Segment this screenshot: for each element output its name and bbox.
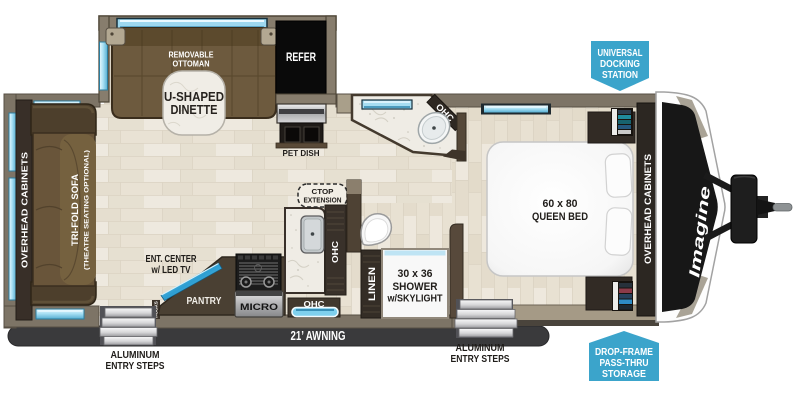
svg-text:21’ AWNING: 21’ AWNING [291,329,346,343]
svg-text:OTTOMAN: OTTOMAN [173,59,210,69]
svg-text:ENT. CENTER: ENT. CENTER [146,254,198,265]
svg-text:w/ LED TV: w/ LED TV [151,265,191,276]
svg-text:CTOP: CTOP [312,189,334,196]
svg-text:STATION: STATION [602,70,638,81]
svg-text:EXTENSION: EXTENSION [304,198,342,205]
svg-text:OHC: OHC [330,241,340,263]
svg-text:PASS-THRU: PASS-THRU [600,358,649,369]
svg-text:60 x 80: 60 x 80 [543,198,578,210]
svg-text:w/SKYLIGHT: w/SKYLIGHT [387,294,443,305]
svg-text:PANTRY: PANTRY [187,295,222,307]
svg-text:ALUMINUM: ALUMINUM [111,350,160,361]
svg-text:(THEATRE SEATING OPTIONAL): (THEATRE SEATING OPTIONAL) [84,150,91,270]
svg-text:SHOWER: SHOWER [393,281,438,293]
svg-text:OVERHEAD CABINETS: OVERHEAD CABINETS [643,154,653,264]
svg-text:ENTRY STEPS: ENTRY STEPS [106,361,165,372]
svg-text:QUEEN BED: QUEEN BED [532,211,588,223]
svg-text:STORAGE: STORAGE [602,369,646,380]
svg-text:30 x 36: 30 x 36 [398,268,433,280]
svg-text:LINEN: LINEN [367,267,377,301]
svg-text:REFER: REFER [286,52,317,64]
svg-text:MICRO: MICRO [240,302,278,313]
svg-text:U-SHAPED: U-SHAPED [164,90,224,104]
svg-text:ENTRY STEPS: ENTRY STEPS [451,354,510,365]
svg-text:UNIVERSAL: UNIVERSAL [598,48,643,59]
svg-text:OVERHEAD CABINETS: OVERHEAD CABINETS [20,152,30,268]
svg-text:PET DISH: PET DISH [283,148,320,158]
svg-text:TRI-FOLD SOFA: TRI-FOLD SOFA [70,173,80,246]
svg-text:DROP-FRAME: DROP-FRAME [595,347,653,358]
svg-text:ALUMINUM: ALUMINUM [456,343,505,354]
svg-text:DINETTE: DINETTE [171,103,218,117]
svg-text:DOCKING: DOCKING [600,59,640,70]
